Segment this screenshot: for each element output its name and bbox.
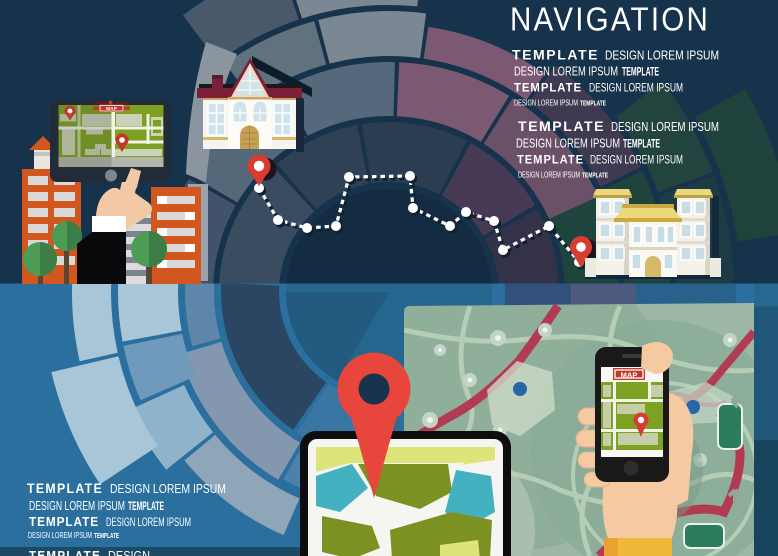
svg-text:TEMPLATE: TEMPLATE [512,48,599,63]
svg-text:TEMPLATE: TEMPLATE [128,499,164,513]
svg-text:TEMPLATE: TEMPLATE [94,531,119,540]
svg-text:DESIGN LOREM IPSUM: DESIGN LOREM IPSUM [518,171,580,180]
svg-text:TEMPLATE: TEMPLATE [517,153,584,167]
svg-text:DESIGN: DESIGN [108,549,150,556]
svg-text:TEMPLATE: TEMPLATE [29,548,101,556]
svg-text:DESIGN LOREM IPSUM: DESIGN LOREM IPSUM [110,481,226,496]
svg-text:DESIGN LOREM IPSUM: DESIGN LOREM IPSUM [605,48,719,63]
svg-text:TEMPLATE: TEMPLATE [514,81,582,95]
svg-text:DESIGN LOREM IPSUM: DESIGN LOREM IPSUM [514,65,618,79]
svg-text:TEMPLATE: TEMPLATE [582,171,608,180]
svg-text:TEMPLATE: TEMPLATE [580,99,606,108]
svg-text:DESIGN LOREM IPSUM: DESIGN LOREM IPSUM [590,155,683,167]
svg-text:DESIGN LOREM IPSUM: DESIGN LOREM IPSUM [514,99,578,108]
svg-text:DESIGN LOREM IPSUM: DESIGN LOREM IPSUM [516,137,620,151]
svg-text:MAP: MAP [621,371,638,380]
svg-text:DESIGN LOREM IPSUM: DESIGN LOREM IPSUM [29,499,125,513]
svg-text:DESIGN LOREM IPSUM: DESIGN LOREM IPSUM [611,119,719,134]
svg-text:NAVIGATION: NAVIGATION [510,1,710,38]
svg-text:TEMPLATE: TEMPLATE [623,137,660,151]
svg-text:DESIGN LOREM IPSUM: DESIGN LOREM IPSUM [589,83,683,95]
svg-text:TEMPLATE: TEMPLATE [29,515,99,529]
svg-text:DESIGN LOREM IPSUM: DESIGN LOREM IPSUM [28,531,92,540]
svg-text:DESIGN LOREM IPSUM: DESIGN LOREM IPSUM [106,515,191,529]
svg-text:TEMPLATE: TEMPLATE [518,118,605,134]
svg-text:TEMPLATE: TEMPLATE [622,65,659,79]
svg-text:TEMPLATE: TEMPLATE [27,480,103,496]
svg-text:MAP: MAP [106,106,117,112]
